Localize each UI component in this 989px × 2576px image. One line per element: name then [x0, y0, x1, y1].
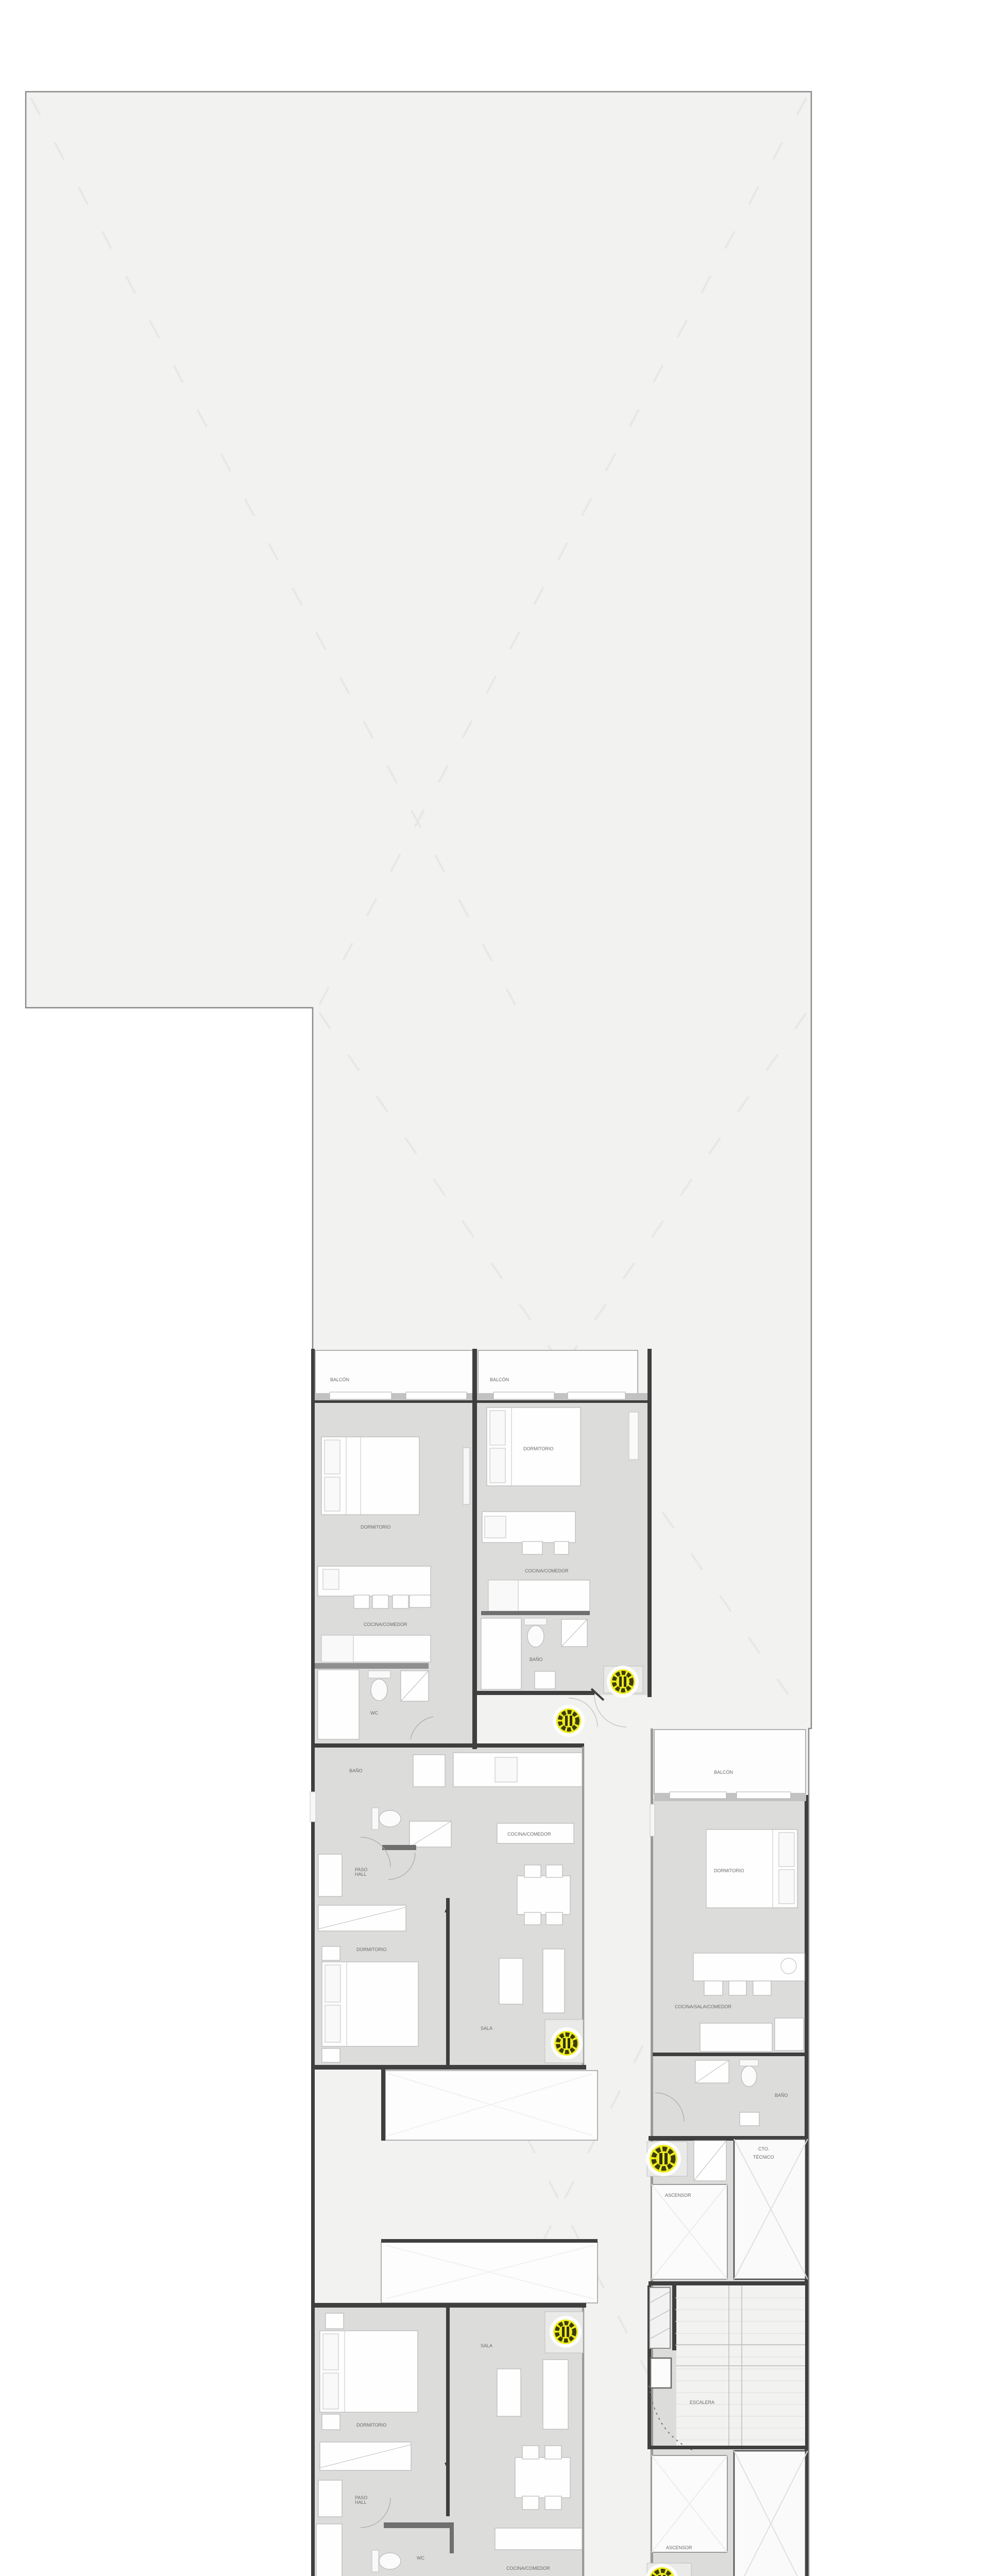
svg-text:COCINA/COMEDOR: COCINA/COMEDOR	[506, 2566, 550, 2571]
svg-text:BALCÓN: BALCÓN	[714, 1770, 733, 1775]
svg-text:CTO.: CTO.	[758, 2146, 769, 2151]
svg-text:ASCENSOR: ASCENSOR	[665, 2193, 691, 2198]
svg-text:ESCALERA: ESCALERA	[690, 2400, 714, 2405]
svg-text:DORMITORIO: DORMITORIO	[523, 1446, 553, 1451]
svg-text:SALA: SALA	[481, 2026, 492, 2031]
svg-text:COCINA/COMEDOR: COCINA/COMEDOR	[507, 1832, 551, 1837]
svg-text:COCINA/COMEDOR: COCINA/COMEDOR	[525, 1568, 569, 1573]
svg-text:DORMITORIO: DORMITORIO	[714, 1868, 744, 1873]
svg-text:BALCÓN: BALCÓN	[490, 1377, 509, 1382]
svg-text:BAÑO: BAÑO	[349, 1768, 363, 1773]
svg-text:COCINA/COMEDOR: COCINA/COMEDOR	[364, 1622, 407, 1627]
svg-text:DORMITORIO: DORMITORIO	[356, 1947, 386, 1952]
svg-text:DORMITORIO: DORMITORIO	[361, 1524, 390, 1530]
svg-text:HALL: HALL	[355, 1872, 367, 1877]
svg-text:BAÑO: BAÑO	[530, 1657, 543, 1662]
svg-text:SALA: SALA	[481, 2343, 492, 2348]
svg-text:TÉCNICO: TÉCNICO	[753, 2155, 774, 2160]
svg-text:BAÑO: BAÑO	[775, 2093, 788, 2098]
svg-text:HALL: HALL	[355, 2500, 367, 2505]
svg-text:ASCENSOR: ASCENSOR	[666, 2545, 692, 2550]
svg-text:DORMITORIO: DORMITORIO	[356, 2422, 386, 2428]
svg-text:WC: WC	[417, 2555, 424, 2561]
svg-text:WC: WC	[370, 1710, 378, 1716]
svg-text:COCINA/SALA/COMEDOR: COCINA/SALA/COMEDOR	[675, 2004, 732, 2009]
svg-text:BALCÓN: BALCÓN	[330, 1377, 349, 1382]
